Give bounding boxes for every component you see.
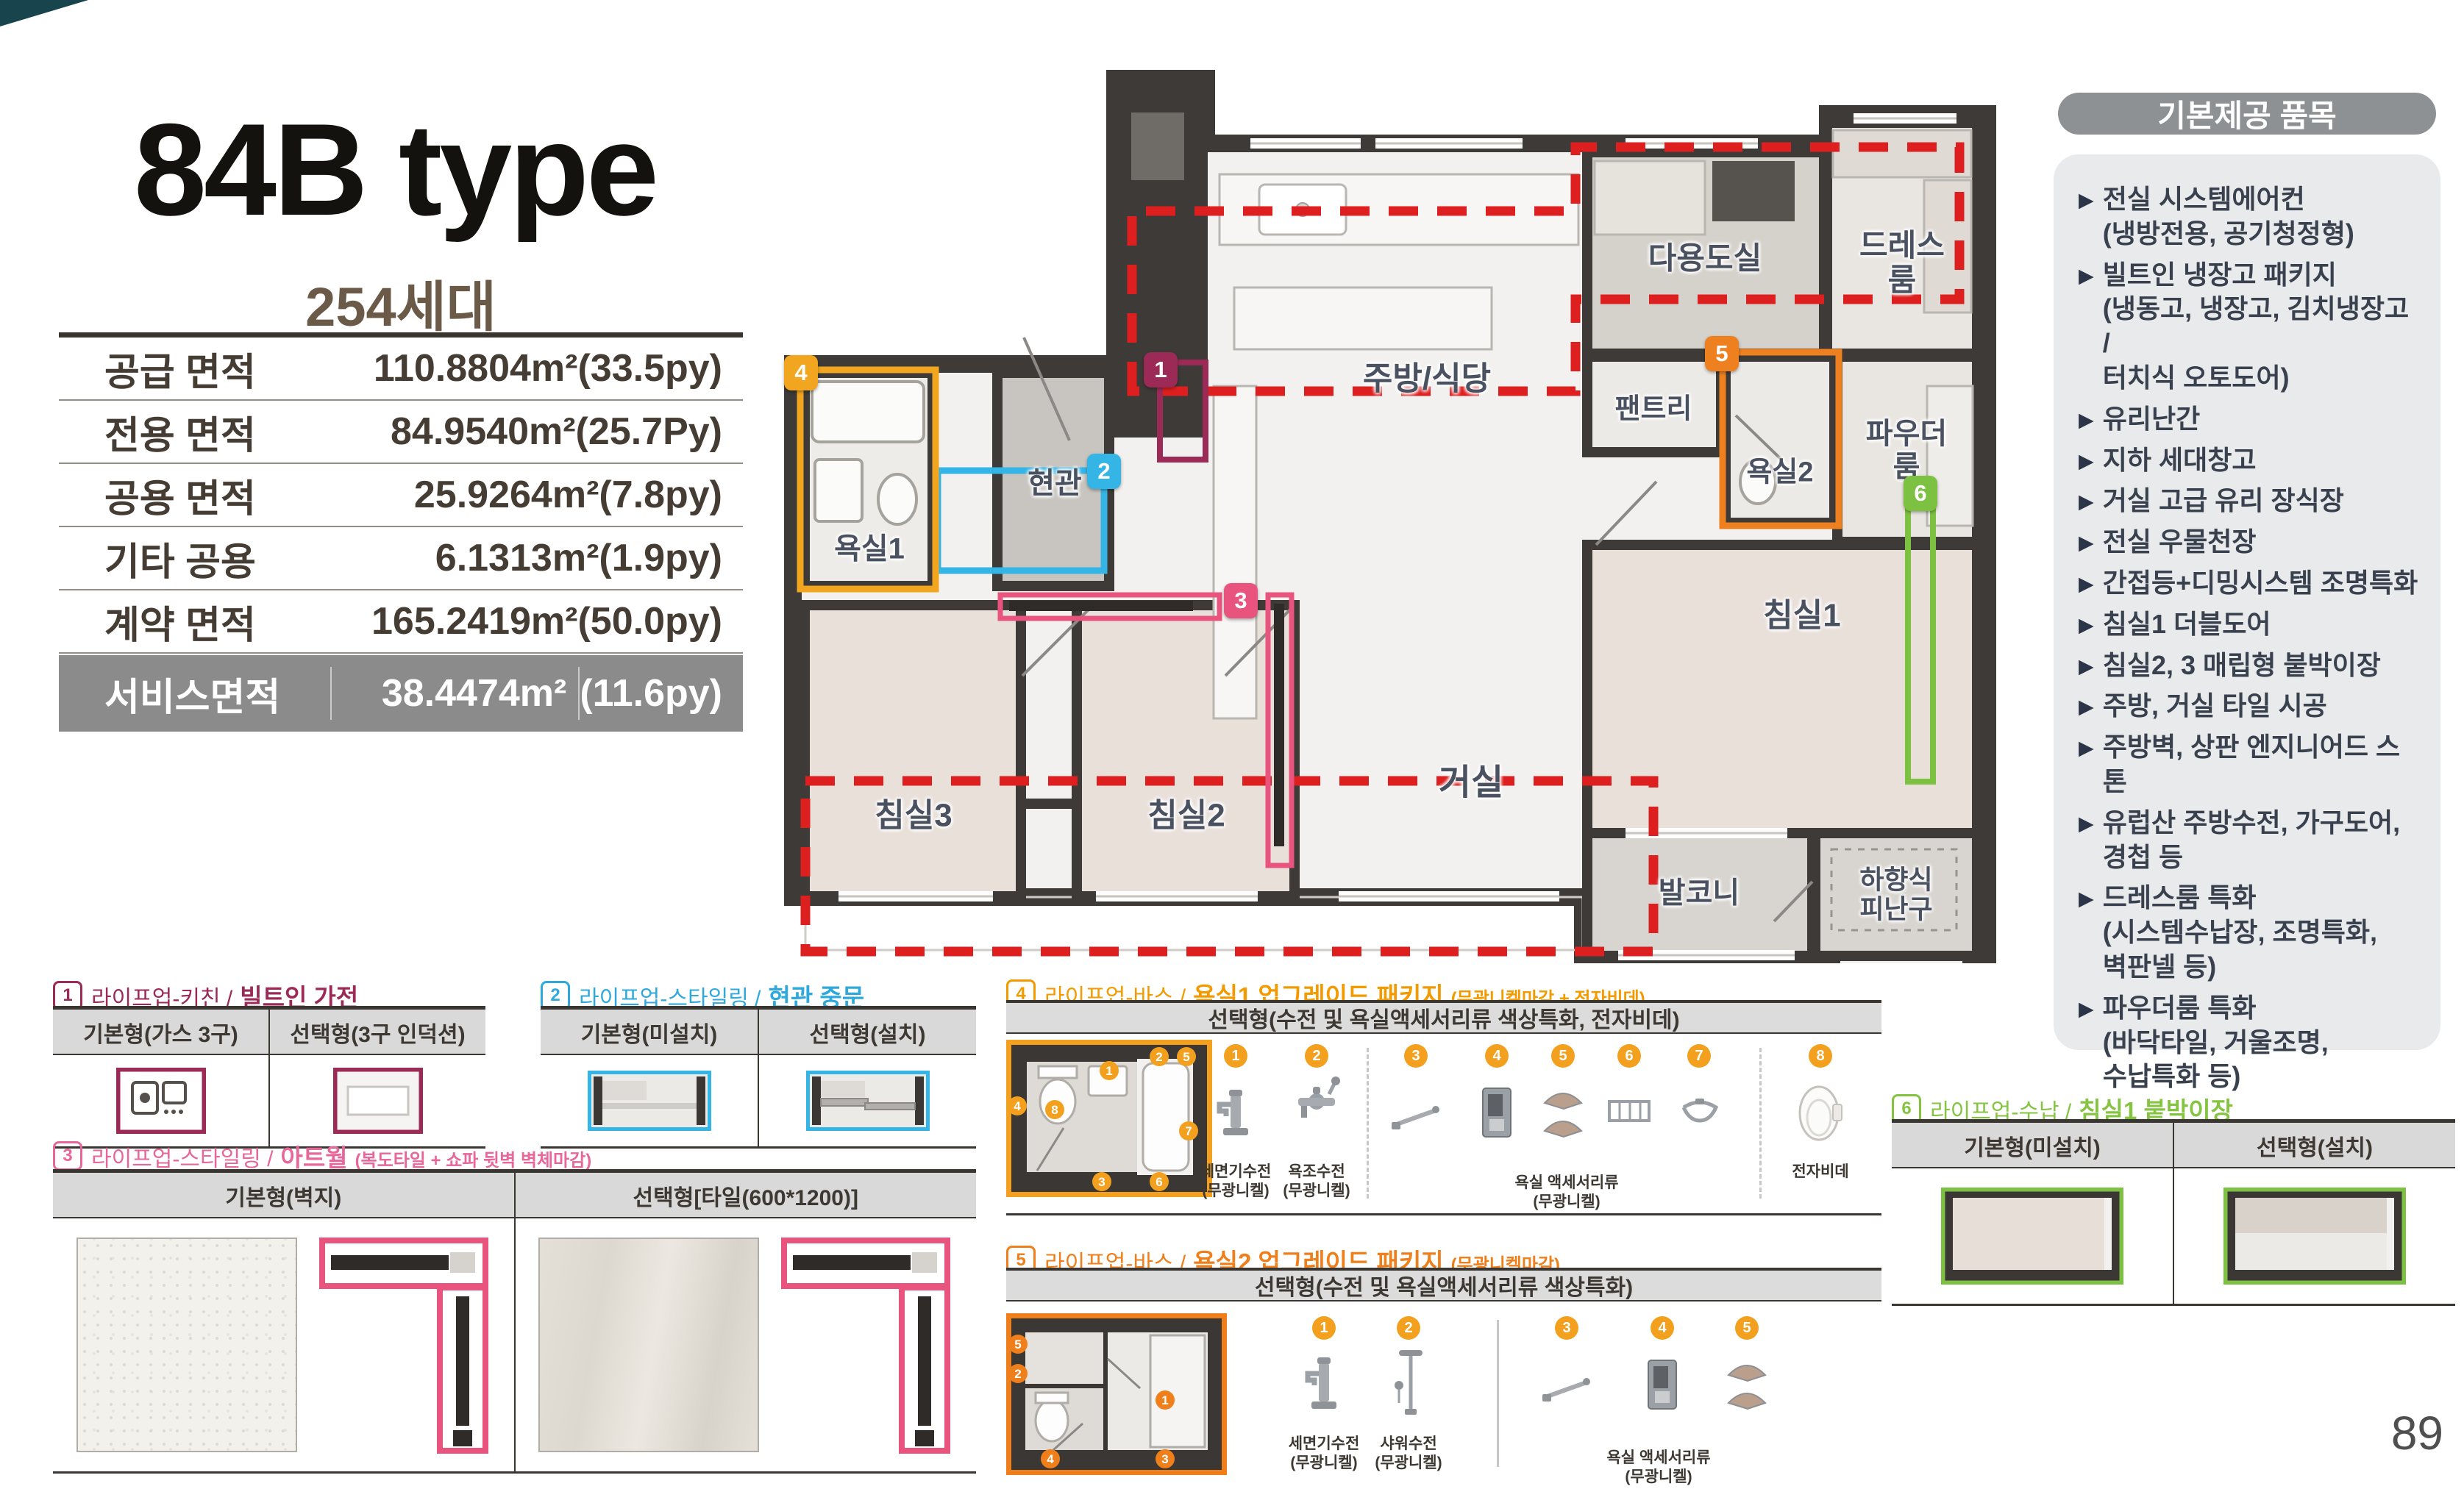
kitchen-island (1234, 288, 1492, 349)
row-label: 공용 면적 (59, 468, 341, 523)
room-label: 침실2 (1147, 797, 1225, 833)
corner-shelf-icon (1721, 1344, 1773, 1425)
item-number-badge: 3 (1555, 1316, 1578, 1340)
section2-table: 기본형(미설치) 선택형(설치) (541, 1006, 976, 1149)
room-label: 팬트리 (1615, 394, 1692, 426)
row-value: 165.2419m² (331, 599, 578, 643)
section-number-badge: 3 (53, 1141, 82, 1171)
brochure-page: 84B type 254세대 공급 면적 110.8804m² (33.5py)… (0, 0, 2464, 1489)
provided-items-title: 기본제공 품목 (2058, 93, 2436, 135)
room-label: 주방/식당 (1363, 360, 1491, 396)
svg-text:2: 2 (1156, 1050, 1162, 1064)
washer (1595, 161, 1705, 235)
option-cell (53, 1218, 514, 1471)
row-label: 전용 면적 (59, 404, 330, 460)
area-table: 공급 면적 110.8804m² (33.5py) 전용 면적 84.9540m… (59, 332, 743, 732)
col-header: 선택형(설치) (2173, 1123, 2455, 1167)
list-item: ▶지하 세대창고 (2079, 443, 2418, 478)
list-item: ▶침실1 더블도어 (2079, 607, 2418, 642)
list-item: ▶주방, 거실 타일 시공 (2079, 689, 2418, 724)
item-number-badge: 2 (1397, 1316, 1420, 1340)
col-header: 기본형(미설치) (541, 1010, 758, 1054)
corner-decoration (0, 0, 88, 26)
duct (1131, 113, 1184, 180)
tub-faucet-icon (1291, 1072, 1342, 1153)
table-row: 계약 면적 165.2419m² (50.0py) (59, 590, 743, 654)
product-item: 7 (1655, 1044, 1743, 1157)
basin-faucet-icon (1210, 1072, 1261, 1153)
item-label: 욕조수전 (무광니켈) (1272, 1163, 1361, 1201)
no-middle-door-image (588, 1071, 711, 1131)
kitchen-cabinet-run (1214, 386, 1256, 718)
towel-ring-icon (1673, 1072, 1725, 1153)
svg-text:5: 5 (1183, 1050, 1189, 1064)
item-number-badge: 4 (1651, 1316, 1674, 1340)
col-header: 선택형(설치) (758, 1010, 976, 1054)
section-note: (복도타일 + 쇼파 뒷벽 벽체마감) (355, 1146, 592, 1171)
list-item: ▶드레스룸 특화 (시스템수납장, 조명특화, 벽판넬 등) (2079, 881, 2418, 984)
svg-text:4: 4 (1014, 1099, 1021, 1113)
col-header: 기본형(가스 3구) (53, 1010, 268, 1054)
option-cell (2173, 1168, 2455, 1304)
svg-text:2: 2 (1014, 1367, 1021, 1381)
table-row: 전용 면적 84.9540m² (25.7Py) (59, 401, 743, 464)
triangle-bullet-icon: ▶ (2079, 189, 2094, 251)
section4-bottom-rule (1006, 1213, 1881, 1215)
recessed-holder-icon (1637, 1344, 1688, 1425)
section3-title: 3 라이프업-스타일링 / 아트월 (복도타일 + 쇼파 뒷벽 벽체마감) (53, 1138, 591, 1174)
item-text: 간접등+디밍시스템 조명특화 (2103, 566, 2418, 601)
tile-swatch (538, 1238, 759, 1452)
triangle-bullet-icon: ▶ (2079, 813, 2094, 875)
product-item: 3 (1523, 1316, 1611, 1429)
row-value: 110.8804m² (331, 346, 578, 390)
option-cell (53, 1055, 268, 1146)
svg-text:4: 4 (1047, 1452, 1054, 1466)
plan-marker-3: 3 (1224, 583, 1258, 618)
item-number-badge: 2 (1305, 1044, 1328, 1068)
triangle-bullet-icon: ▶ (2079, 265, 2094, 396)
corner-shelf-icon (1537, 1072, 1589, 1153)
unit-count: 254세대 (59, 263, 743, 342)
col-header: 선택형[타일(600*1200)] (514, 1173, 977, 1217)
bidet-icon (1795, 1072, 1846, 1153)
basin-faucet-icon (1298, 1344, 1350, 1425)
triangle-bullet-icon: ▶ (2079, 696, 2094, 724)
toilet (878, 474, 916, 524)
triangle-bullet-icon: ▶ (2079, 409, 2094, 437)
item-number-badge: 7 (1687, 1044, 1711, 1068)
row-value: 38.4474m² (332, 667, 580, 721)
room-label: 하향식 피난구 (1859, 865, 1932, 925)
room-label: 다용도실 (1648, 240, 1762, 275)
room-bed2 (1077, 605, 1295, 896)
separator (1367, 1048, 1369, 1199)
triangle-bullet-icon: ▶ (2079, 450, 2094, 478)
towel-rack-icon (1603, 1072, 1655, 1153)
row-label: 서비스면적 (59, 667, 332, 721)
svg-text:5: 5 (1014, 1338, 1021, 1351)
item-text: 유리난간 (2103, 402, 2200, 437)
product-item: 5 (1703, 1316, 1791, 1429)
room-bath2 (1726, 357, 1834, 523)
item-text: 거실 고급 유리 장식장 (2103, 484, 2344, 518)
artwall-plan-basic (318, 1233, 491, 1457)
separator (1497, 1320, 1499, 1467)
section6-table: 기본형(미설치) 선택형(설치) (1892, 1119, 2455, 1306)
list-item: ▶전실 시스템에어컨 (냉방전용, 공기청정형) (2079, 182, 2418, 251)
option-cell (514, 1218, 977, 1471)
svg-text:3: 3 (1161, 1452, 1168, 1466)
row-py: (1.9py) (599, 536, 743, 580)
item-text: 주방, 거실 타일 시공 (2103, 689, 2327, 724)
bathtub (812, 382, 924, 442)
option-cell (541, 1055, 758, 1146)
item-number-badge: 4 (1485, 1044, 1509, 1068)
list-item: ▶침실2, 3 매립형 붙박이장 (2079, 649, 2418, 683)
artwall-bar-h (1009, 601, 1193, 611)
wallpaper-swatch (76, 1238, 297, 1452)
item-number-badge: 3 (1404, 1044, 1428, 1068)
floor-plan: 현관 욕실1 침실3 침실2 거실 주방/식당 다용도실 팬트리 드레스룸 욕실… (780, 70, 2004, 963)
room-label: 거실 (1439, 763, 1503, 803)
item-label: 샤워수전 (무광니켈) (1364, 1435, 1453, 1474)
section4-option-header: 선택형(수전 및 욕실액세서리류 색상특화, 전자비데) (1006, 1000, 1881, 1034)
closet-nook (1021, 605, 1077, 804)
closet-basic-image (1941, 1188, 2123, 1285)
row-py: (11.6py) (580, 671, 743, 715)
towel-bar-icon (1541, 1344, 1592, 1425)
product-item: 1 세면기수전 (무광니켈) (1192, 1044, 1280, 1201)
item-text: 침실2, 3 매립형 붙박이장 (2103, 649, 2381, 683)
col-header: 선택형(3구 인덕션) (268, 1010, 485, 1054)
product-item: 1 세면기수전 (무광니켈) (1280, 1316, 1368, 1474)
gas-stove-image (116, 1068, 206, 1134)
room-label: 발코니 (1659, 877, 1740, 910)
section-name: 아트월 (280, 1138, 347, 1174)
closet-installed-image (2223, 1188, 2406, 1285)
page-title: 84B type (134, 94, 722, 245)
list-item: ▶유럽산 주방수전, 가구도어, 경첩 등 (2079, 806, 2418, 875)
plan-marker-4: 4 (784, 355, 818, 390)
list-item: ▶유리난간 (2079, 402, 2418, 437)
item-text: 지하 세대창고 (2103, 443, 2257, 478)
item-text: 침실1 더블도어 (2103, 607, 2271, 642)
induction-image (333, 1068, 423, 1134)
triangle-bullet-icon: ▶ (2079, 998, 2094, 1094)
provided-items-panel: ▶전실 시스템에어컨 (냉방전용, 공기청정형) ▶빌트인 냉장고 패키지 (냉… (2054, 154, 2440, 1050)
group-label: 욕실 액세서리류 (무광니켈) (1578, 1449, 1740, 1488)
product-item: 2 샤워수전 (무광니켈) (1364, 1316, 1453, 1474)
item-number-badge: 5 (1551, 1044, 1575, 1068)
item-number-badge: 8 (1809, 1044, 1832, 1068)
wardrobe-top (1833, 130, 1971, 177)
col-header: 기본형(벽지) (53, 1173, 514, 1217)
col-header: 기본형(미설치) (1892, 1123, 2173, 1167)
item-label: 전자비데 (1776, 1163, 1865, 1182)
list-item: ▶빌트인 냉장고 패키지 (냉동고, 냉장고, 김치냉장고 / 터치식 오토도어… (2079, 258, 2418, 396)
section5-option-header: 선택형(수전 및 욕실액세서리류 색상특화) (1006, 1268, 1881, 1301)
group-label: 욕실 액세서리류 (무광니켈) (1486, 1174, 1648, 1213)
plan-marker-5: 5 (1705, 336, 1739, 371)
middle-door-installed-image (806, 1071, 930, 1131)
triangle-bullet-icon: ▶ (2079, 573, 2094, 601)
item-text: 빌트인 냉장고 패키지 (냉동고, 냉장고, 김치냉장고 / 터치식 오토도어) (2103, 258, 2418, 396)
floor-plan-drawing (780, 70, 2004, 963)
section-category: 라이프업-스타일링 / (91, 1140, 273, 1173)
artwall-bar-v (1274, 604, 1284, 846)
section3-table: 기본형(벽지) 선택형[타일(600*1200)] (53, 1169, 976, 1474)
item-number-badge: 6 (1617, 1044, 1641, 1068)
svg-text:1: 1 (1105, 1064, 1112, 1078)
product-item: 8 전자비데 (1776, 1044, 1865, 1182)
row-py: (50.0py) (577, 599, 743, 643)
row-py: (7.8py) (599, 473, 743, 517)
svg-text:3: 3 (1098, 1175, 1105, 1189)
item-text: 전실 우물천장 (2103, 525, 2257, 560)
list-item: ▶간접등+디밍시스템 조명특화 (2079, 566, 2418, 601)
row-label: 계약 면적 (59, 594, 331, 649)
list-item: ▶주방벽, 상판 엔지니어드 스톤 (2079, 730, 2418, 799)
room-label: 드레스룸 (1851, 228, 1954, 297)
room-label: 욕실1 (834, 533, 905, 566)
list-item: ▶파우더룸 특화 (바닥타일, 거울조명, 수납특화 등) (2079, 991, 2418, 1094)
row-py: (25.7Py) (576, 410, 743, 454)
triangle-bullet-icon: ▶ (2079, 490, 2094, 518)
option-cell (268, 1055, 485, 1146)
row-label: 기타 공용 (59, 531, 341, 586)
triangle-bullet-icon: ▶ (2079, 888, 2094, 984)
item-text: 전실 시스템에어컨 (냉방전용, 공기청정형) (2103, 182, 2354, 251)
table-row: 기타 공용 6.1313m² (1.9py) (59, 527, 743, 590)
plan-marker-2: 2 (1087, 454, 1121, 489)
triangle-bullet-icon: ▶ (2079, 614, 2094, 642)
shower-column-icon (1383, 1344, 1434, 1425)
item-text: 유럽산 주방수전, 가구도어, 경첩 등 (2103, 806, 2400, 875)
option-cell (758, 1055, 976, 1146)
bath2-mini-plan: 5 2 1 4 3 (1006, 1313, 1227, 1479)
item-number-badge: 5 (1735, 1316, 1759, 1340)
plan-marker-6: 6 (1904, 476, 1937, 511)
option-cell (1892, 1168, 2173, 1304)
svg-text:1: 1 (1161, 1393, 1168, 1407)
room-bed3 (805, 605, 1021, 896)
page-number: 89 (2346, 1406, 2443, 1460)
triangle-bullet-icon: ▶ (2079, 737, 2094, 799)
towel-bar-icon (1390, 1072, 1442, 1153)
artwall-plan-tile (780, 1233, 953, 1457)
separator (1759, 1048, 1762, 1199)
room-label: 침실1 (1763, 597, 1840, 633)
row-value: 6.1313m² (341, 536, 599, 580)
recessed-holder-icon (1471, 1072, 1523, 1153)
product-item: 3 (1372, 1044, 1460, 1157)
table-row-service: 서비스면적 38.4474m² (11.6py) (59, 655, 743, 732)
item-text: 파우더룸 특화 (바닥타일, 거울조명, 수납특화 등) (2103, 991, 2329, 1094)
bath1-mini-plan: 1 2 5 4 8 7 3 6 (1006, 1040, 1212, 1201)
plan-marker-1: 1 (1144, 352, 1178, 388)
row-py: (33.5py) (577, 346, 743, 390)
svg-text:8: 8 (1051, 1103, 1058, 1117)
table-row: 공급 면적 110.8804m² (33.5py) (59, 338, 743, 401)
row-value: 25.9264m² (341, 473, 599, 517)
item-text: 드레스룸 특화 (시스템수납장, 조명특화, 벽판넬 등) (2103, 881, 2377, 984)
room-bed1 (1587, 545, 1977, 833)
room-label: 현관 (1028, 468, 1082, 501)
item-label: 세면기수전 (무광니켈) (1192, 1163, 1280, 1201)
item-number-badge: 1 (1224, 1044, 1247, 1068)
room-label: 파우더룸 (1858, 418, 1956, 484)
row-label: 공급 면적 (59, 341, 331, 396)
fridge-builtin (1712, 161, 1795, 221)
svg-text:6: 6 (1156, 1175, 1162, 1189)
room-label: 욕실2 (1746, 457, 1813, 489)
triangle-bullet-icon: ▶ (2079, 532, 2094, 560)
list-item: ▶전실 우물천장 (2079, 525, 2418, 560)
item-label: 세면기수전 (무광니켈) (1280, 1435, 1368, 1474)
section1-table: 기본형(가스 3구) 선택형(3구 인덕션) (53, 1006, 485, 1149)
item-number-badge: 1 (1312, 1316, 1336, 1340)
row-value: 84.9540m² (330, 410, 575, 454)
table-row: 공용 면적 25.9264m² (7.8py) (59, 464, 743, 527)
sink (815, 460, 862, 521)
product-item: 4 (1618, 1316, 1706, 1429)
product-item: 2 욕조수전 (무광니켈) (1272, 1044, 1361, 1201)
triangle-bullet-icon: ▶ (2079, 655, 2094, 683)
item-text: 주방벽, 상판 엔지니어드 스톤 (2103, 730, 2418, 799)
list-item: ▶거실 고급 유리 장식장 (2079, 484, 2418, 518)
room-label: 침실3 (875, 797, 952, 833)
